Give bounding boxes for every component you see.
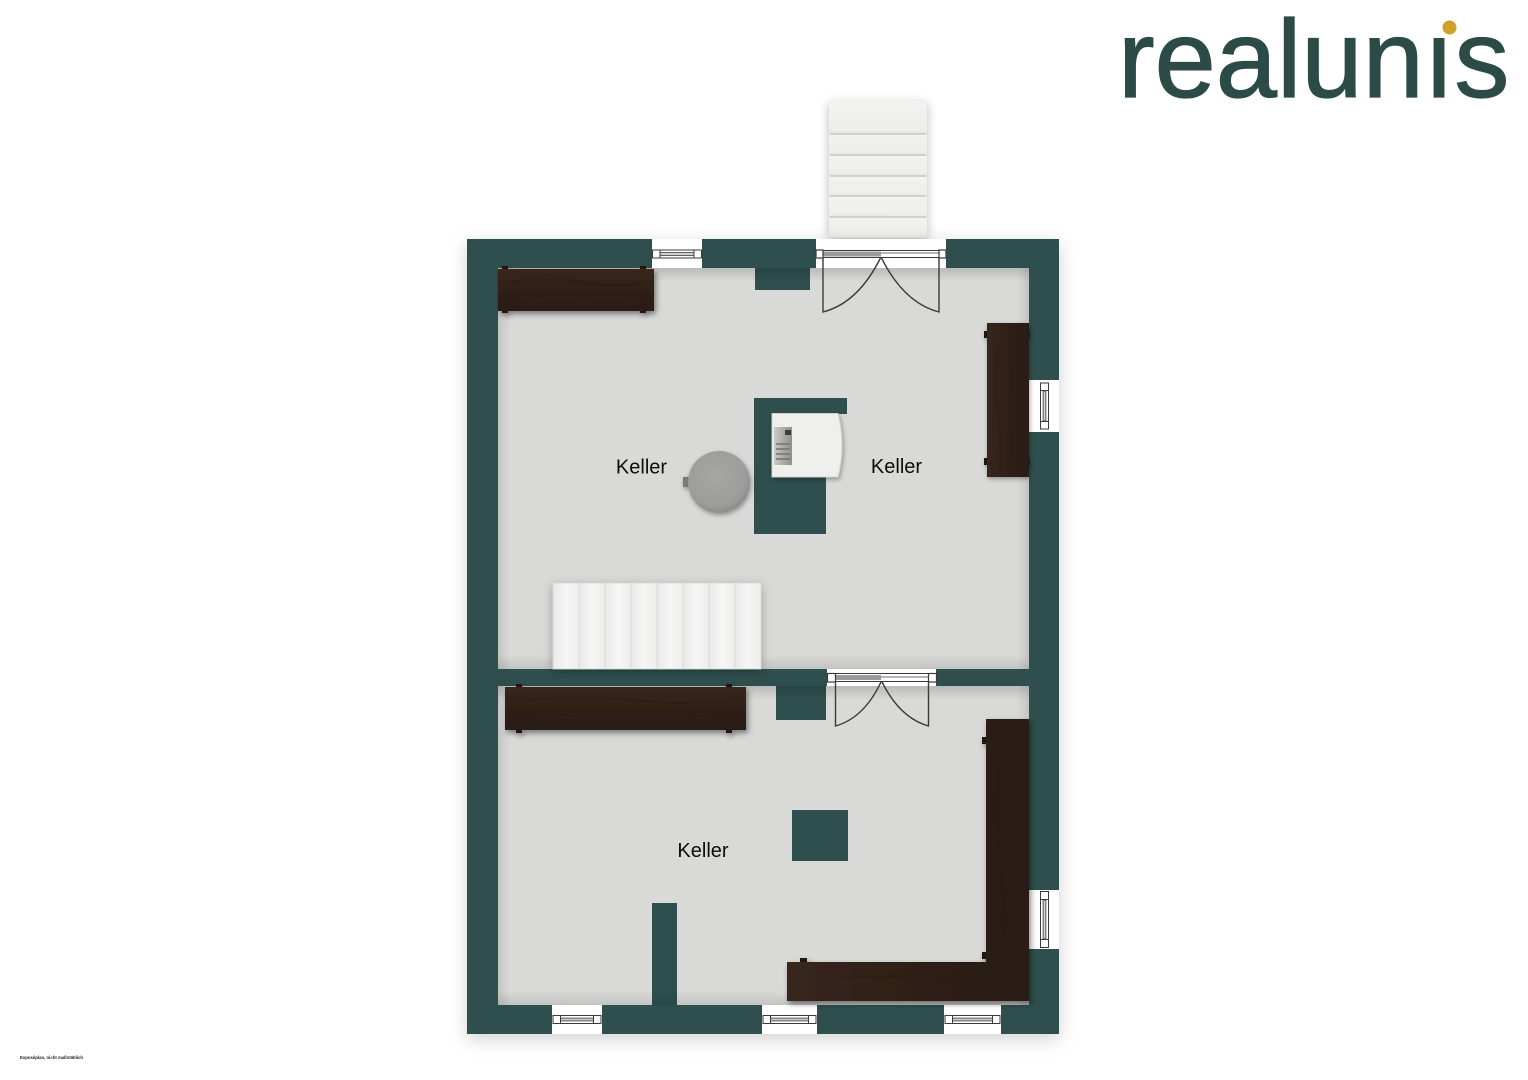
svg-text:Keller: Keller bbox=[677, 840, 728, 862]
svg-text:realunıs: realunıs bbox=[1118, 0, 1509, 121]
svg-text:Keller: Keller bbox=[871, 456, 922, 478]
svg-text:Exposéplan, nicht maßstäblich: Exposéplan, nicht maßstäblich bbox=[20, 1055, 83, 1060]
svg-text:Keller: Keller bbox=[616, 457, 667, 479]
